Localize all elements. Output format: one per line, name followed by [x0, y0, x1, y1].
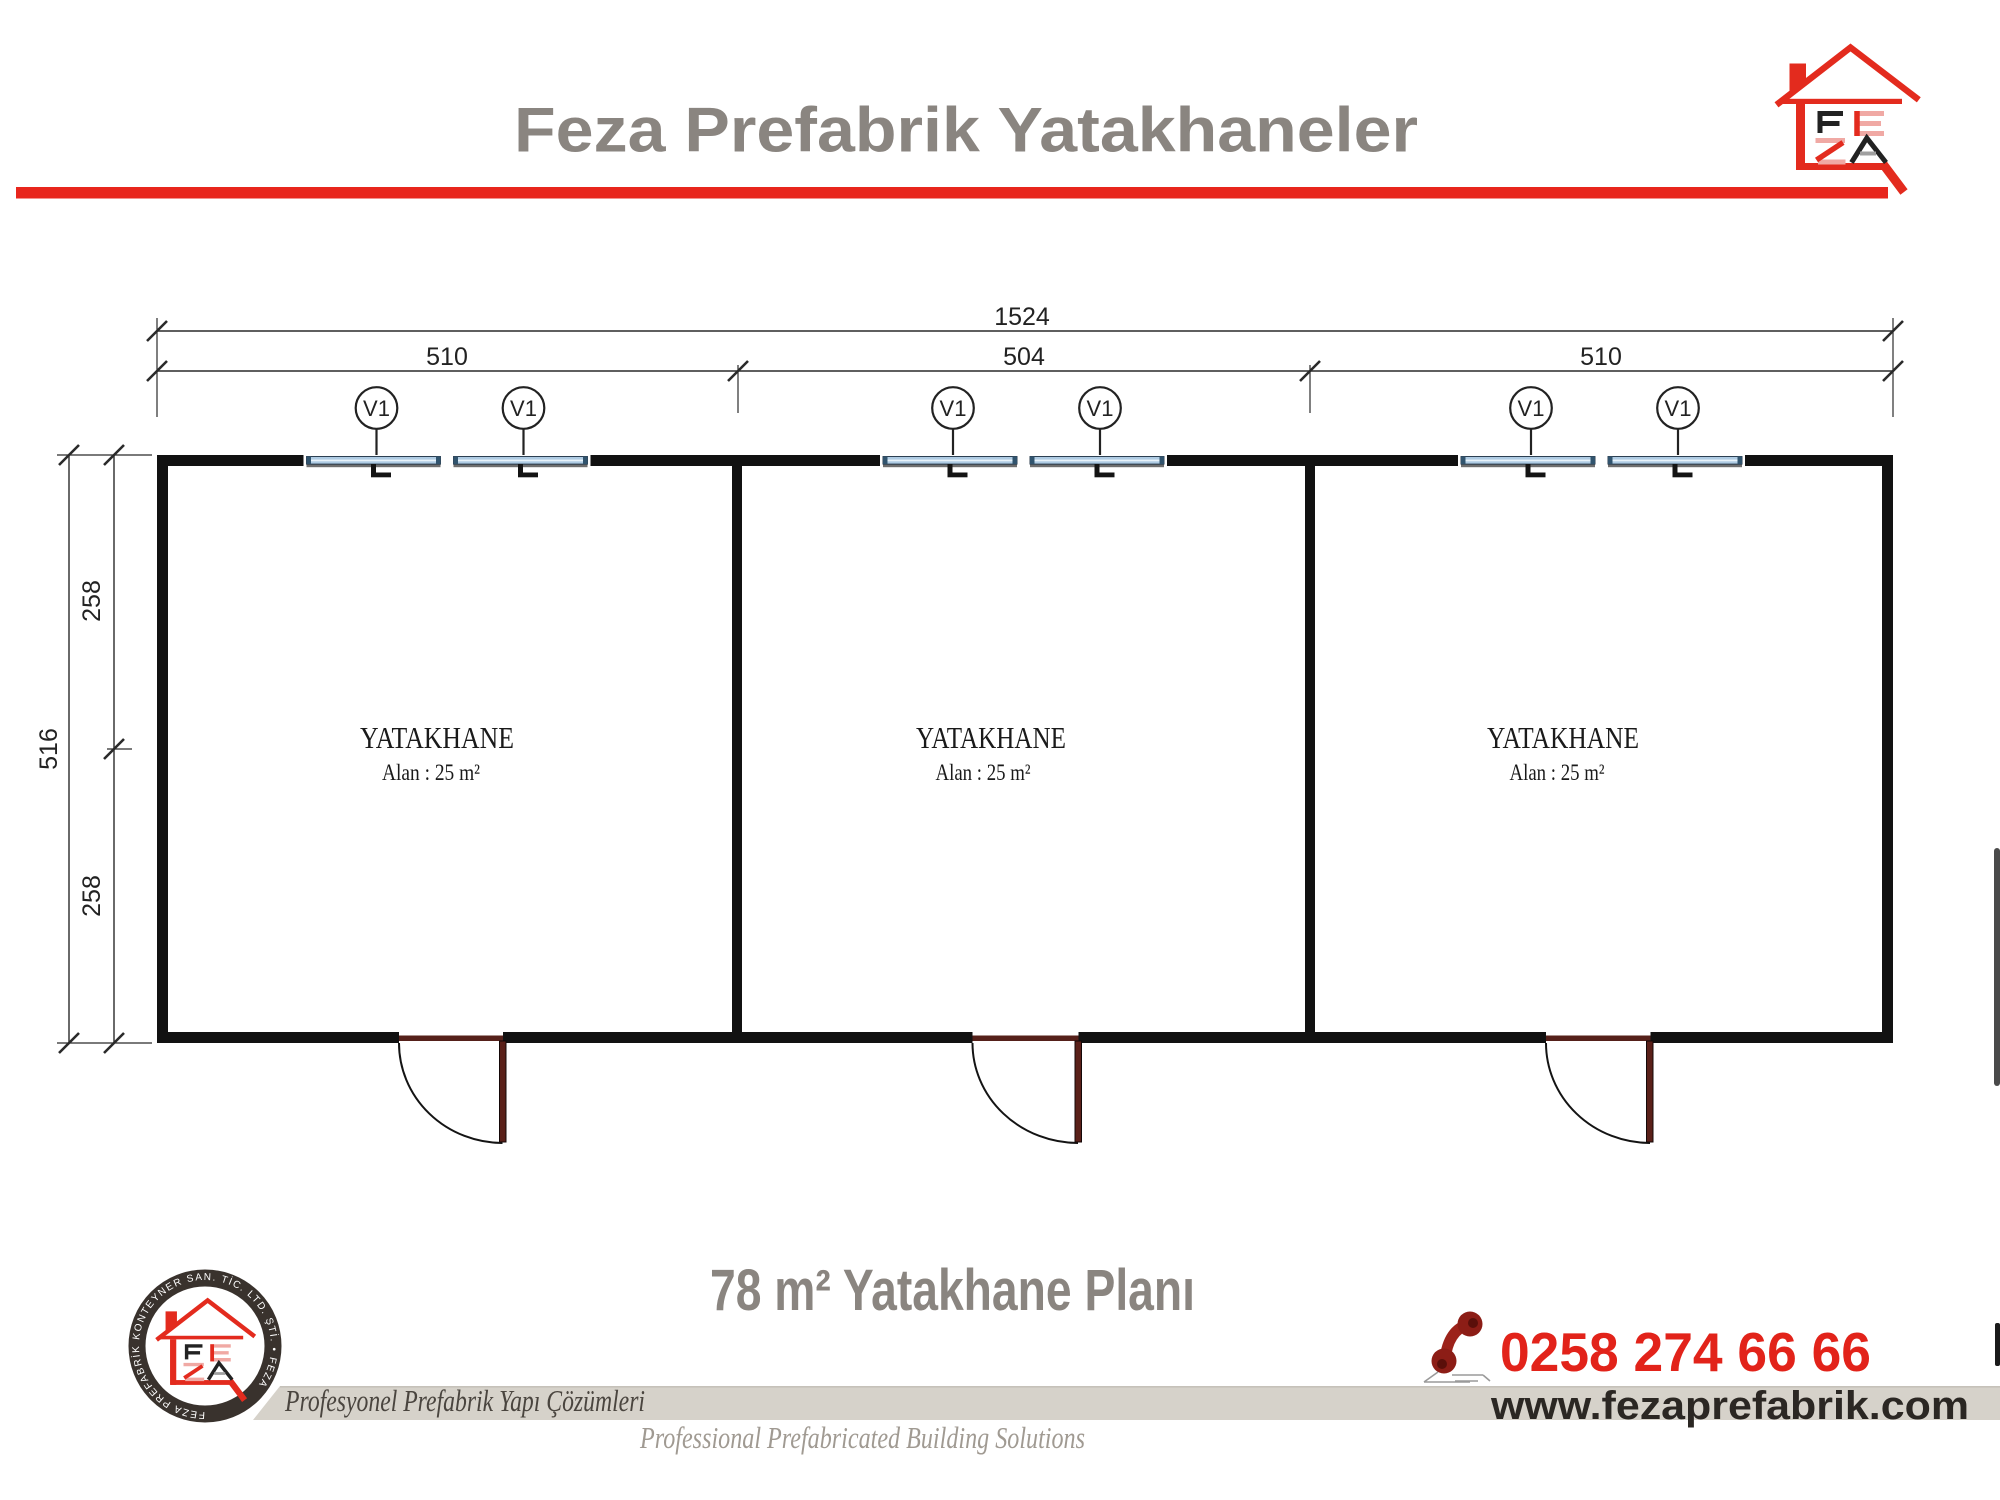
- svg-text:Feza Prefabrik Yatakhaneler: Feza Prefabrik Yatakhaneler: [514, 96, 1418, 166]
- svg-text:258: 258: [78, 875, 106, 917]
- svg-text:516: 516: [35, 728, 63, 770]
- svg-text:78 m² Yatakhane Planı: 78 m² Yatakhane Planı: [710, 1258, 1195, 1323]
- svg-text:0258 274 66 66: 0258 274 66 66: [1500, 1321, 1871, 1383]
- svg-text:258: 258: [78, 580, 106, 622]
- svg-text:510: 510: [1580, 343, 1622, 371]
- svg-text:V1: V1: [1518, 396, 1545, 421]
- svg-text:YATAKHANE: YATAKHANE: [916, 720, 1066, 755]
- svg-text:YATAKHANE: YATAKHANE: [360, 720, 514, 755]
- svg-text:YATAKHANE: YATAKHANE: [1487, 720, 1639, 755]
- svg-text:V1: V1: [363, 396, 390, 421]
- svg-text:Profesyonel Prefabrik Yapı Çöz: Profesyonel Prefabrik Yapı Çözümleri: [284, 1383, 645, 1418]
- svg-text:V1: V1: [940, 396, 967, 421]
- svg-text:www.fezaprefabrik.com: www.fezaprefabrik.com: [1490, 1384, 1969, 1428]
- svg-text:1524: 1524: [994, 303, 1050, 331]
- svg-text:V1: V1: [510, 396, 537, 421]
- svg-text:510: 510: [426, 343, 468, 371]
- svg-text:Alan : 25 m²: Alan : 25 m²: [1510, 760, 1605, 785]
- svg-text:Professional Prefabricated Bui: Professional Prefabricated Building Solu…: [639, 1420, 1085, 1455]
- svg-text:Alan : 25 m²: Alan : 25 m²: [936, 760, 1031, 785]
- svg-text:V1: V1: [1087, 396, 1114, 421]
- svg-text:V1: V1: [1665, 396, 1692, 421]
- svg-text:504: 504: [1003, 343, 1045, 371]
- svg-text:Alan : 25 m²: Alan : 25 m²: [382, 760, 480, 785]
